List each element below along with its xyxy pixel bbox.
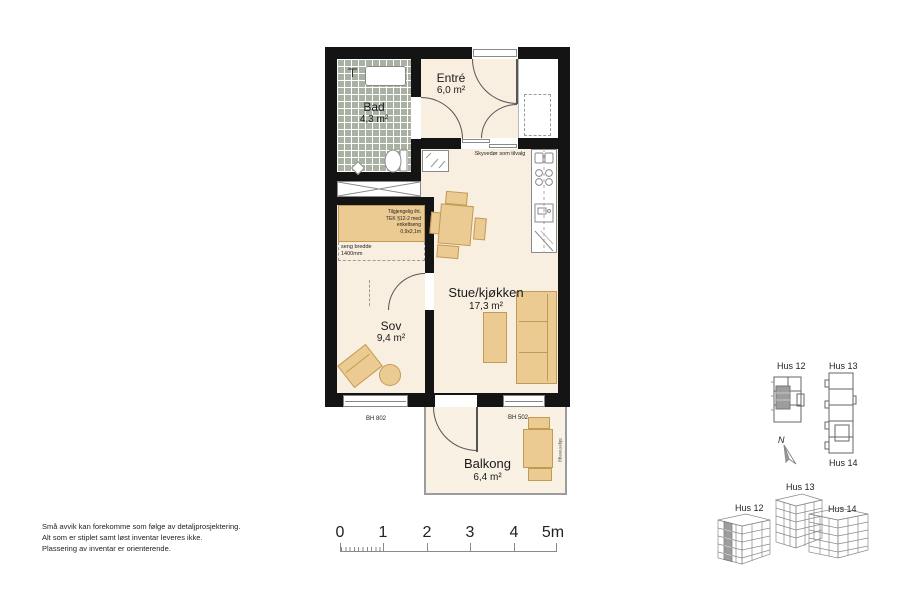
- sill-height-left: BH 802: [348, 416, 404, 422]
- scale-label: 4: [510, 524, 519, 542]
- clearance-dashed-line: [369, 280, 371, 306]
- sov-window: [343, 395, 408, 407]
- bed-note-line: Tilgjengelig iht.: [386, 209, 421, 216]
- scale-label: 0: [336, 524, 345, 542]
- scale-baseline: [340, 551, 557, 552]
- closet-separator-line: [518, 59, 519, 138]
- room-label-entre: Entré 6,0 m²: [413, 71, 489, 97]
- site-plan: Hus 12 N Hus 13: [763, 356, 873, 471]
- wall-sov-top: [325, 197, 433, 205]
- disclaimer-line: Alt som er stiplet samt løst inventar le…: [42, 532, 240, 543]
- balcony-door-leaf: [476, 407, 478, 452]
- dining-chair: [436, 244, 459, 259]
- pouf: [379, 364, 401, 386]
- room-name: Stue/kjøkken: [430, 285, 542, 301]
- sliding-door-panel-2: [489, 144, 517, 148]
- wall-left: [325, 47, 337, 405]
- room-name: Bad: [337, 100, 411, 114]
- scale-minor-ticks: [341, 547, 384, 551]
- floor-plan-page: Tilgjengelig iht. TEK §12-2 med enkeltse…: [0, 0, 900, 600]
- room-area: 9,4 m²: [356, 333, 426, 345]
- bed-width-note: seng bredde 1400mm: [341, 244, 372, 258]
- disclaimer: Små avvik kan forekomme som følge av det…: [42, 521, 240, 554]
- scale-label: 1: [379, 524, 388, 542]
- scale-label: 5m: [542, 524, 564, 542]
- dining-chair: [473, 217, 487, 240]
- scale-label: 3: [466, 524, 475, 542]
- room-label-stue: Stue/kjøkken 17,3 m²: [430, 285, 542, 313]
- entry-door-leaf: [516, 59, 518, 104]
- axon-hus13-label: Hus 13: [786, 482, 815, 492]
- room-name: Entré: [413, 71, 489, 85]
- sofa-backrest-line: [547, 294, 548, 381]
- room-area: 17,3 m²: [430, 301, 542, 313]
- wall-top: [325, 47, 570, 59]
- balcony-screen-note: Skjermvegg: [558, 438, 563, 462]
- bed-width-line2: 1400mm: [341, 251, 372, 258]
- sofa-seat-divider: [519, 321, 547, 322]
- room-area: 6,0 m²: [413, 85, 489, 97]
- scale-tick: [340, 543, 341, 552]
- site-plan-hus14-label: Hus 14: [829, 458, 858, 468]
- sliding-door-note: Skyvedør som tilvalg: [435, 151, 565, 157]
- north-arrow-icon: [784, 445, 796, 464]
- wardrobe-cabinet: [337, 181, 421, 197]
- axonometric-view: Hus 13 Hus 12 Hus 14: [708, 474, 888, 574]
- bed-width-line1: seng bredde: [341, 244, 372, 251]
- scale-tick: [427, 543, 428, 552]
- disclaimer-line: Små avvik kan forekomme som følge av det…: [42, 521, 240, 532]
- sill-height-right: BH 502: [498, 415, 538, 421]
- scale-tick: [514, 543, 515, 552]
- room-label-balkong: Balkong 6,4 m²: [430, 456, 545, 484]
- axon-hus12-label: Hus 12: [735, 503, 764, 513]
- balcony-door-opening: [435, 395, 477, 407]
- sofa-seat-divider: [519, 352, 547, 353]
- wall-right: [558, 47, 570, 405]
- toilet-icon: [383, 146, 409, 176]
- room-label-sov: Sov 9,4 m²: [356, 319, 426, 345]
- room-label-bad: Bad 4,3 m²: [337, 100, 411, 126]
- bad-fixture-t-icon: [346, 66, 359, 79]
- axon-hus13-block: [776, 494, 822, 548]
- coffee-table: [483, 312, 507, 363]
- site-plan-hus13-14-building: [825, 373, 856, 453]
- site-plan-hus12-label: Hus 12: [777, 361, 806, 371]
- north-label: N: [778, 435, 785, 445]
- dining-table: [438, 203, 474, 246]
- sliding-door-panel-1: [462, 139, 490, 143]
- bed-note-line: 0,9x2,1m: [386, 229, 421, 236]
- scale-tick: [470, 543, 471, 552]
- bed: Tilgjengelig iht. TEK §12-2 med enkeltse…: [338, 205, 425, 242]
- wardrobe-x-icon: [338, 182, 420, 196]
- stue-window: [503, 395, 545, 407]
- scale-label: 2: [423, 524, 432, 542]
- scale-tick: [556, 543, 557, 552]
- room-name: Balkong: [430, 456, 545, 472]
- bathtub-icon: [365, 66, 406, 86]
- scale-tick: [383, 543, 384, 552]
- axon-hus14-block: [809, 508, 868, 558]
- room-name: Sov: [356, 319, 426, 333]
- site-plan-hus13-label: Hus 13: [829, 361, 858, 371]
- bad-door-opening: [411, 97, 421, 139]
- kitchen-counter: [531, 149, 557, 253]
- dining-set: [427, 190, 489, 265]
- wardrobe-dashed-outline: [524, 94, 551, 136]
- unit-highlight: [776, 386, 790, 409]
- disclaimer-line: Plassering av inventar er orienterende.: [42, 543, 240, 554]
- entry-door-slab: [473, 49, 517, 57]
- room-area: 6,4 m²: [430, 472, 545, 484]
- room-area: 4,3 m²: [337, 114, 411, 126]
